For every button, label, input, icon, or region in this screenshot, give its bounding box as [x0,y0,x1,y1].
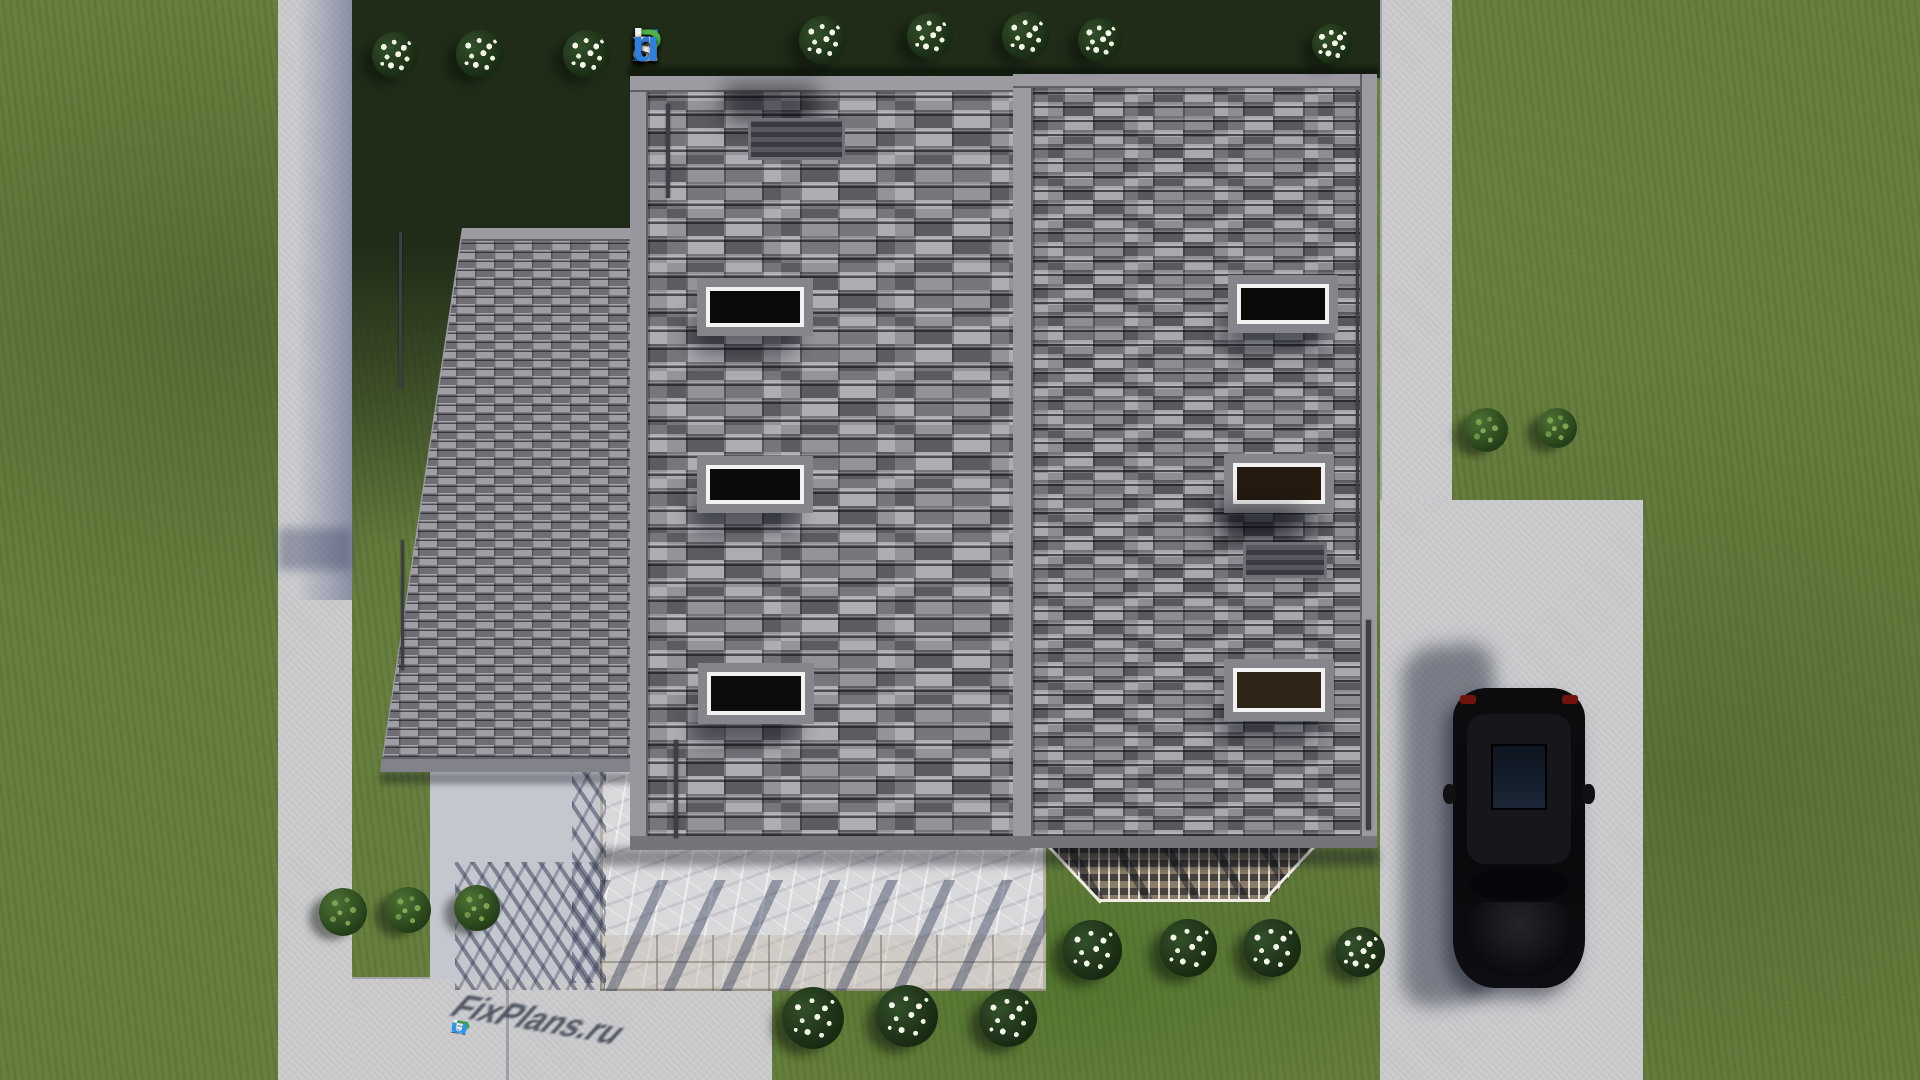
roof-skylight [1237,284,1329,324]
aerial-house-render: FixPlans.ru FixPlans.ru FixPlans.ru [0,0,1920,1080]
watermark-letter: u [448,1016,470,1039]
roof-skylight [706,287,804,327]
pergola-edge-bottom [1098,899,1270,902]
green-bush [385,887,431,933]
car-hood [1465,902,1573,976]
flower-bush [1243,919,1301,977]
roof-chimney [748,118,845,160]
car-windshield [1469,866,1569,900]
car-taillight-left [1460,695,1476,704]
roof-tiles [1033,88,1360,836]
roof-ridge [1013,74,1377,88]
flower-bush [1002,12,1050,60]
roof-gutter-line [401,540,404,670]
roof-ridge [1013,74,1033,848]
roof-ridge [630,76,1030,92]
flower-bush [1078,18,1122,62]
left-walkway-shadow-patch [278,528,352,570]
roof-gutter-line [1356,90,1359,560]
flower-bush [1062,920,1122,980]
flower-bush [1312,24,1352,64]
roof-skylight [707,672,805,715]
roof-eave [630,836,1030,850]
green-bush [1537,408,1577,448]
roof-skylight [1233,668,1325,712]
roof-gutter-line [399,232,402,388]
roof-chimney [1243,542,1327,578]
wing-eave-shadow [380,772,648,784]
car-taillight-right [1562,695,1578,704]
flower-bush [799,16,847,64]
flower-bush [372,32,418,78]
flower-bush [979,989,1037,1047]
roof-fascia [630,76,648,850]
roof-skylight [1233,463,1325,504]
roof-tiles [648,92,1030,836]
flower-bush [456,30,504,78]
black-car [1453,688,1585,988]
flower-bush [876,985,938,1047]
roof-eave [380,757,648,772]
roof-gutter-line [1366,620,1371,830]
roof-main-right-section [1013,74,1377,848]
flower-bush [782,987,844,1049]
flower-bush [1335,927,1385,977]
logo-letter: u [632,20,659,72]
roof-gutter-line [674,740,678,838]
roof-main-left-section [630,76,1030,850]
roof-eave [1013,836,1377,848]
flower-bush [563,30,611,78]
car-sunroof [1491,744,1547,810]
roof-skylight [706,465,804,504]
left-walkway-shadow [296,0,352,600]
green-bush [454,885,500,931]
car-mirror-right [1582,784,1595,804]
roof-gutter-line [666,104,670,198]
patio-pergola-shadow [600,880,1046,991]
flower-bush [907,13,953,59]
car-mirror-left [1443,784,1456,804]
flower-bush [1159,919,1217,977]
roof-eave-shadow [598,848,1378,866]
green-bush [319,888,367,936]
green-bush [1464,408,1508,452]
right-walkway [1380,0,1452,513]
